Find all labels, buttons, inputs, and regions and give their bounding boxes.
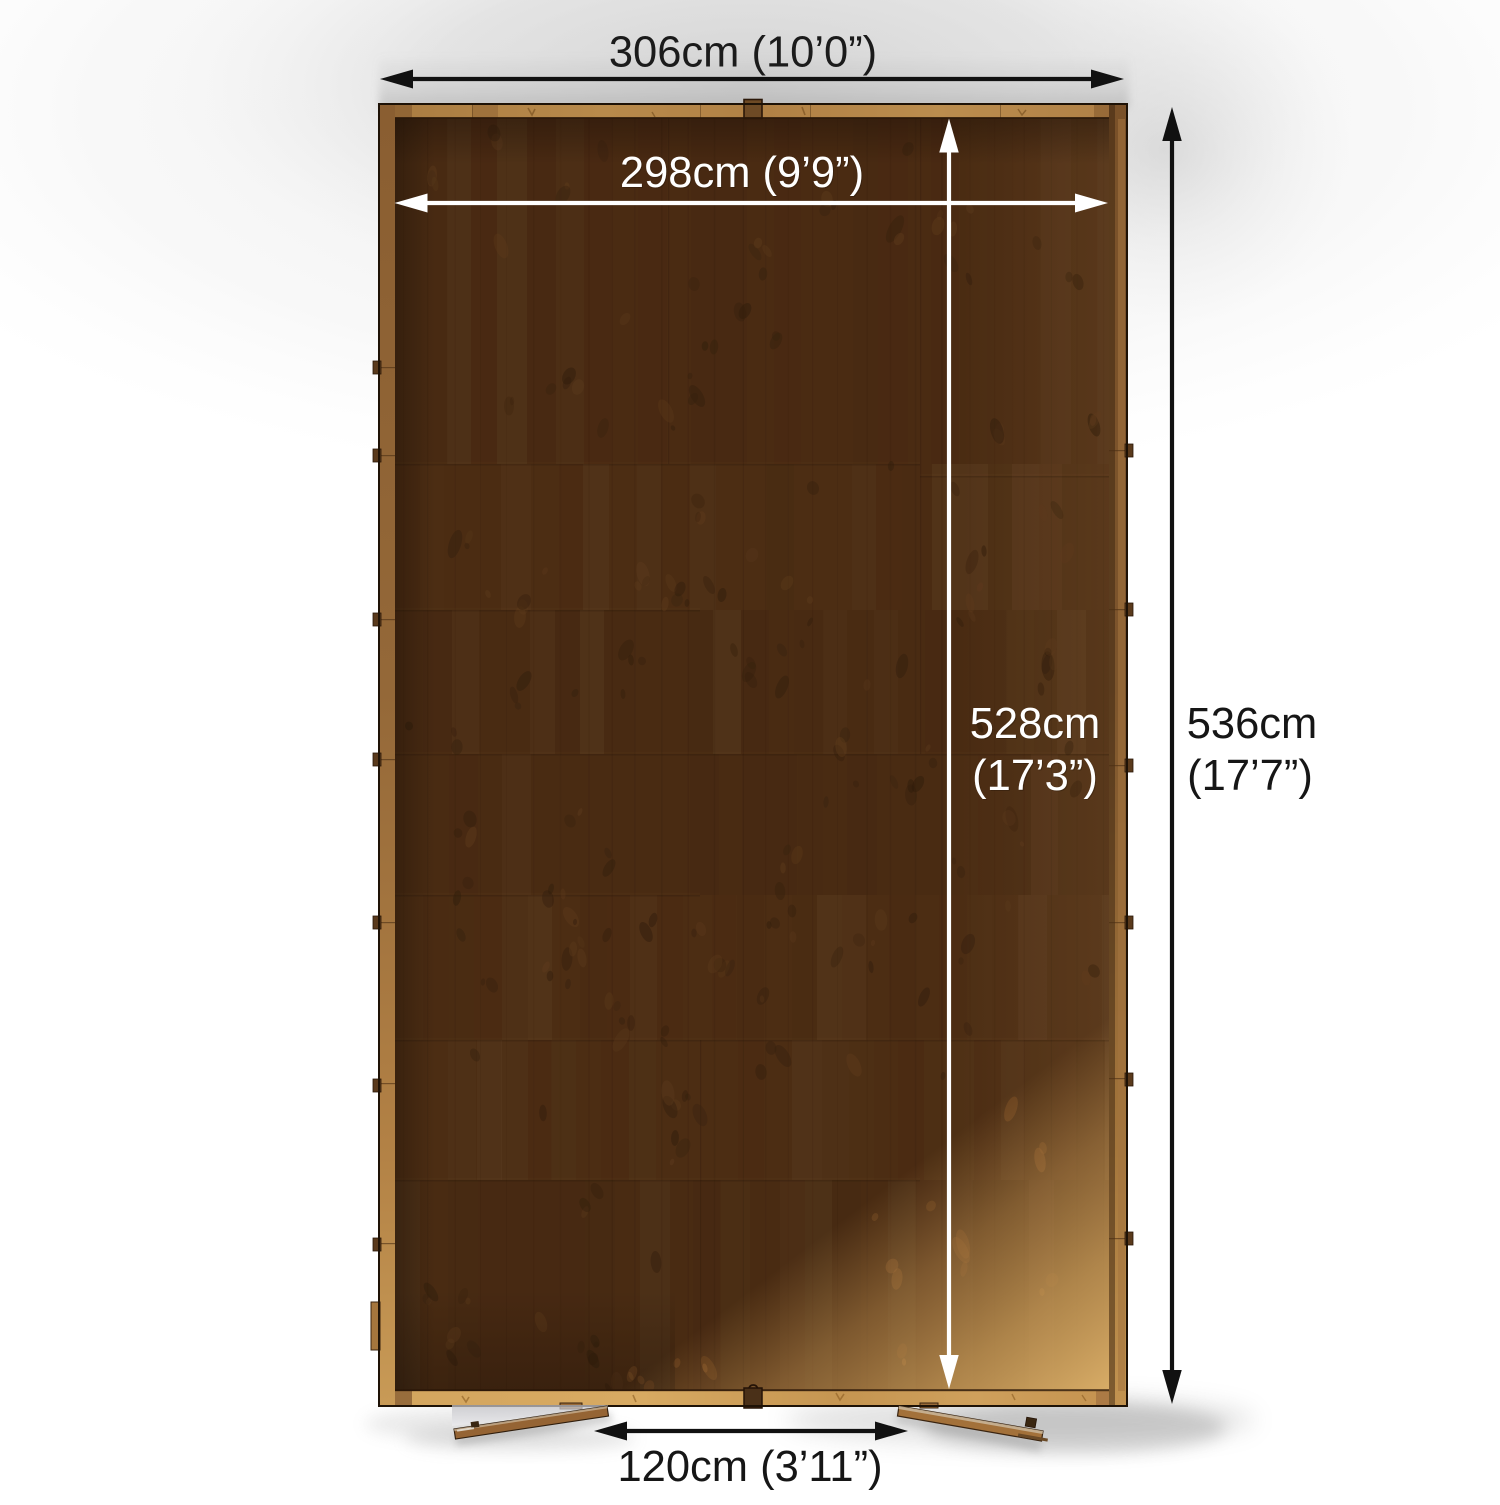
svg-text:528cm: 528cm: [970, 700, 1101, 748]
svg-text:536cm: 536cm: [1187, 700, 1318, 748]
svg-text:(17’7”): (17’7”): [1187, 752, 1313, 800]
svg-text:298cm (9’9”): 298cm (9’9”): [620, 149, 864, 197]
svg-text:306cm (10’0”): 306cm (10’0”): [609, 29, 877, 77]
svg-text:120cm (3’11”): 120cm (3’11”): [617, 1443, 882, 1491]
svg-text:(17’3”): (17’3”): [972, 752, 1098, 800]
